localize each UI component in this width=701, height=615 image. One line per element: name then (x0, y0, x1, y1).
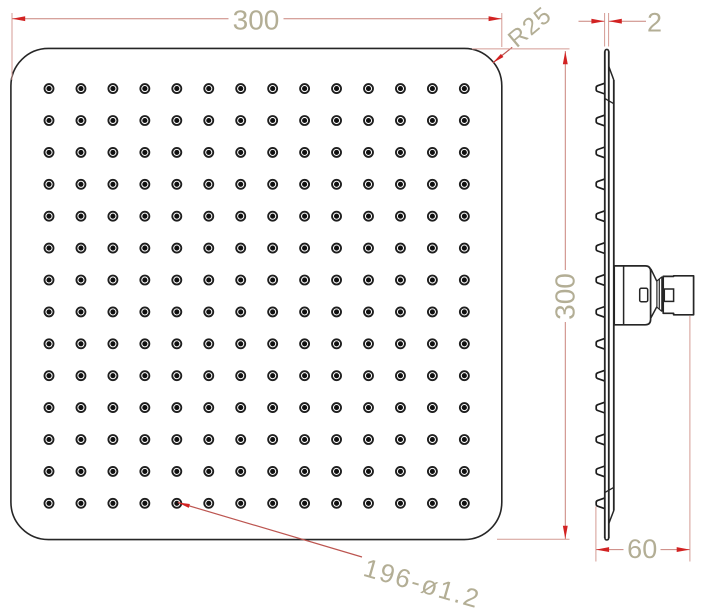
svg-text:300: 300 (233, 5, 280, 36)
svg-text:2: 2 (647, 8, 662, 38)
svg-text:60: 60 (627, 534, 657, 564)
svg-text:300: 300 (550, 273, 581, 320)
